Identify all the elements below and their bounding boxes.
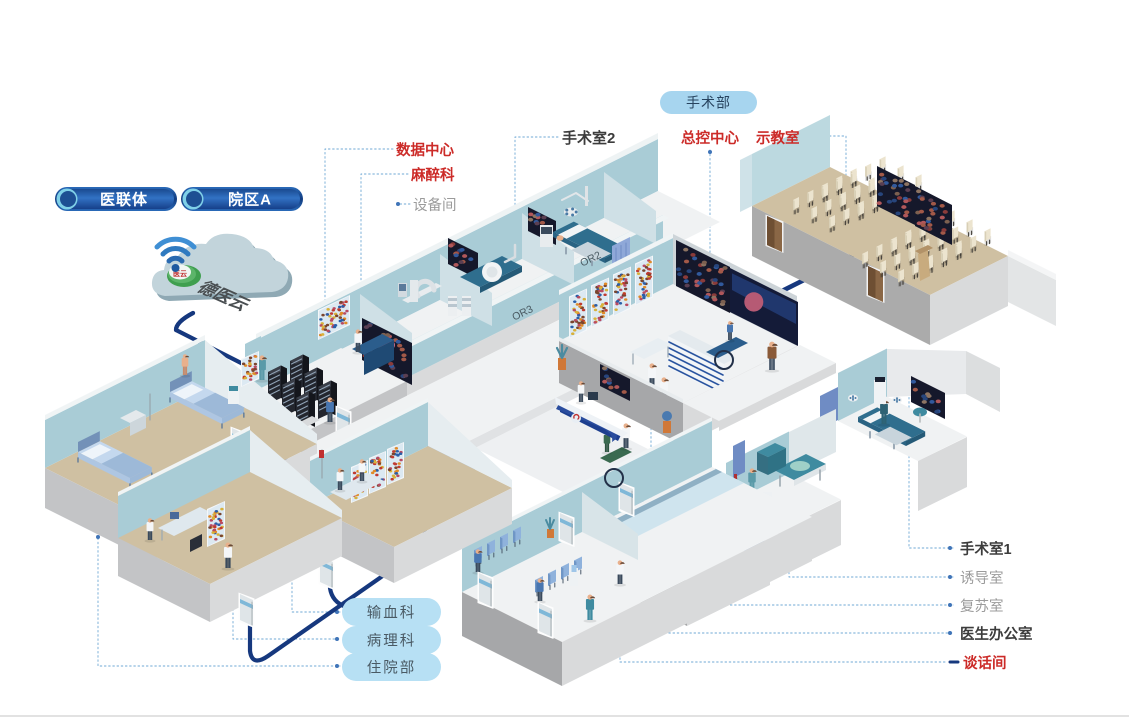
svg-text:输血科: 输血科 [367,605,417,622]
svg-text:示教室: 示教室 [756,129,800,147]
svg-text:病理科: 病理科 [367,633,417,650]
svg-text:医生办公室: 医生办公室 [960,625,1033,643]
svg-text:数据中心: 数据中心 [396,141,454,159]
svg-text:住院部: 住院部 [367,660,417,677]
svg-text:医联体: 医联体 [100,191,148,209]
svg-text:手术室1: 手术室1 [960,540,1012,558]
svg-text:复苏室: 复苏室 [960,597,1004,615]
svg-text:诱导室: 诱导室 [960,570,1004,587]
svg-text:设备间: 设备间 [413,197,457,214]
svg-text:谈话间: 谈话间 [963,654,1007,672]
svg-text:总控中心: 总控中心 [681,129,739,147]
svg-text:院区A: 院区A [228,191,272,209]
svg-text:手术室2: 手术室2 [562,129,615,147]
svg-text:手术部: 手术部 [686,95,731,111]
svg-text:麻醉科: 麻醉科 [410,166,455,184]
